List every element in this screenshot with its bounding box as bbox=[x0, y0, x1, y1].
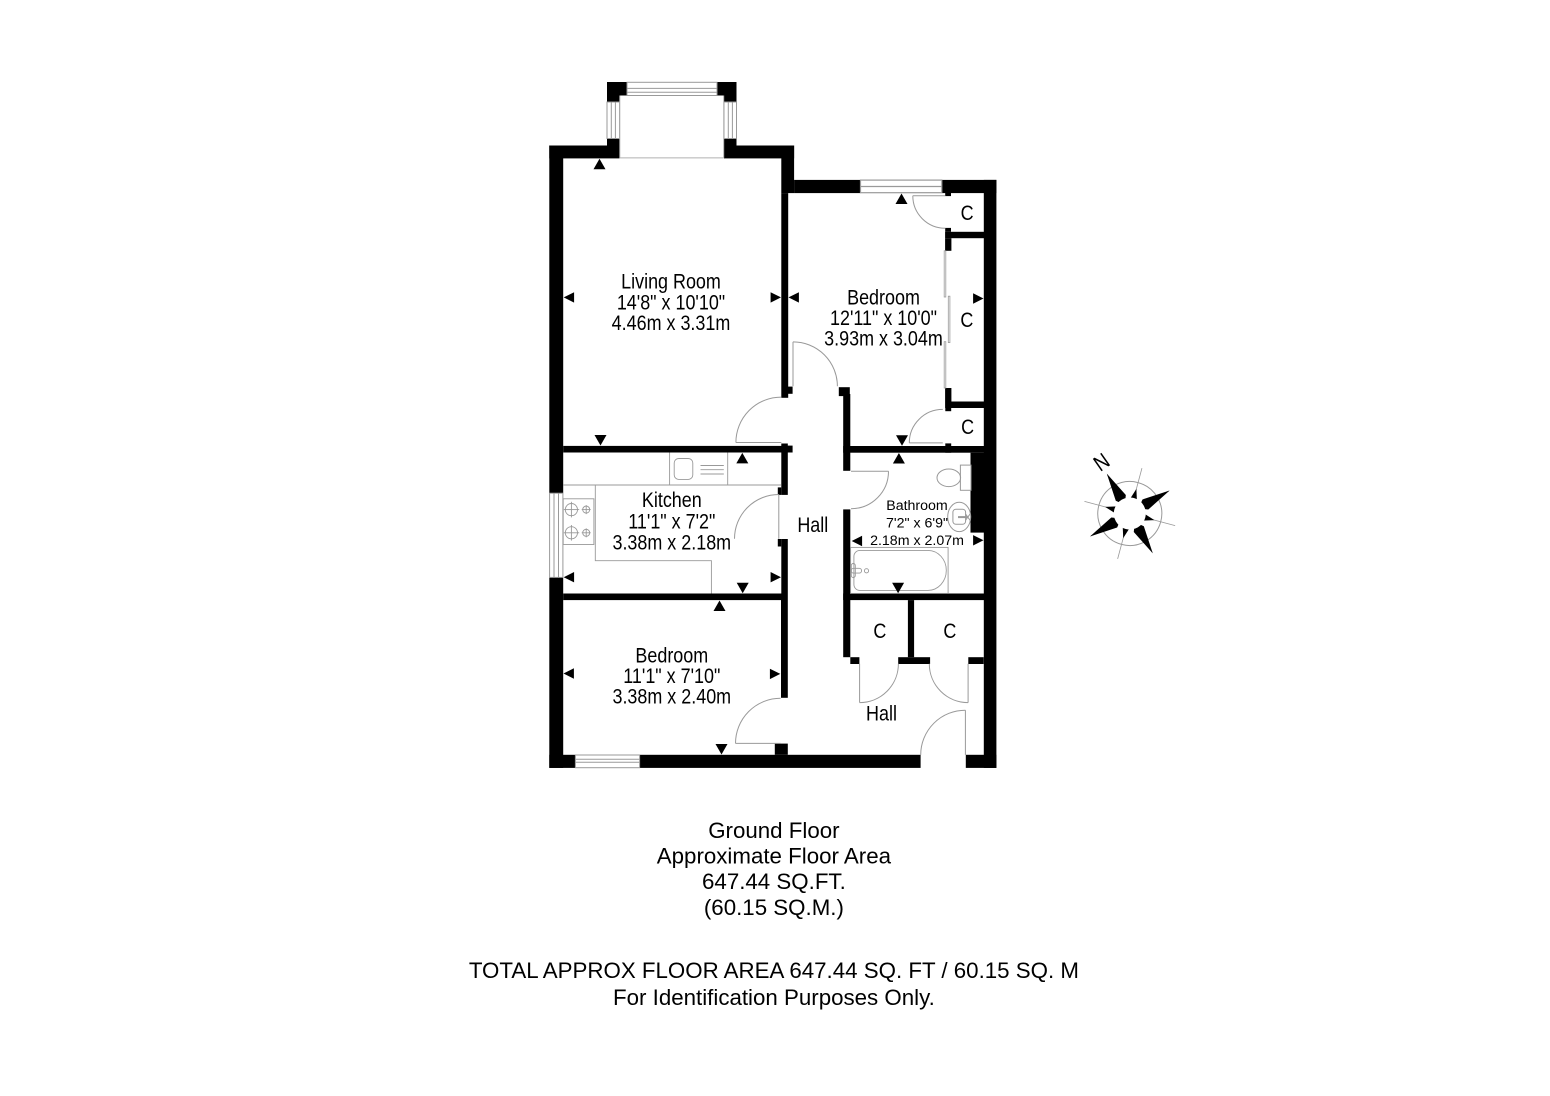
svg-text:3.93m x 3.04m: 3.93m x 3.04m bbox=[824, 327, 943, 351]
svg-text:Hall: Hall bbox=[866, 702, 897, 726]
svg-text:3.38m x 2.40m: 3.38m x 2.40m bbox=[612, 685, 731, 709]
svg-text:Approximate Floor Area: Approximate Floor Area bbox=[657, 844, 892, 869]
svg-text:7'2" x 6'9": 7'2" x 6'9" bbox=[886, 515, 948, 531]
svg-text:4.46m x 3.31m: 4.46m x 3.31m bbox=[612, 312, 731, 336]
svg-text:TOTAL APPROX FLOOR AREA 647.44: TOTAL APPROX FLOOR AREA 647.44 SQ. FT / … bbox=[469, 958, 1079, 983]
svg-text:Kitchen: Kitchen bbox=[642, 489, 702, 513]
svg-text:647.44 SQ.FT.: 647.44 SQ.FT. bbox=[702, 869, 846, 894]
svg-text:C: C bbox=[943, 620, 956, 644]
svg-text:11'1" x 7'2": 11'1" x 7'2" bbox=[628, 510, 715, 534]
svg-text:3.38m x 2.18m: 3.38m x 2.18m bbox=[612, 531, 731, 555]
svg-text:C: C bbox=[960, 309, 973, 333]
svg-text:2.18m x 2.07m: 2.18m x 2.07m bbox=[870, 533, 964, 549]
svg-text:Hall: Hall bbox=[797, 514, 828, 538]
svg-text:Bathroom: Bathroom bbox=[886, 498, 948, 514]
svg-text:C: C bbox=[961, 416, 974, 440]
svg-text:C: C bbox=[961, 202, 974, 226]
svg-text:Ground Floor: Ground Floor bbox=[708, 818, 840, 843]
svg-text:C: C bbox=[873, 620, 886, 644]
svg-text:(60.15 SQ.M.): (60.15 SQ.M.) bbox=[704, 895, 844, 920]
svg-text:For Identification Purposes On: For Identification Purposes Only. bbox=[613, 985, 935, 1010]
